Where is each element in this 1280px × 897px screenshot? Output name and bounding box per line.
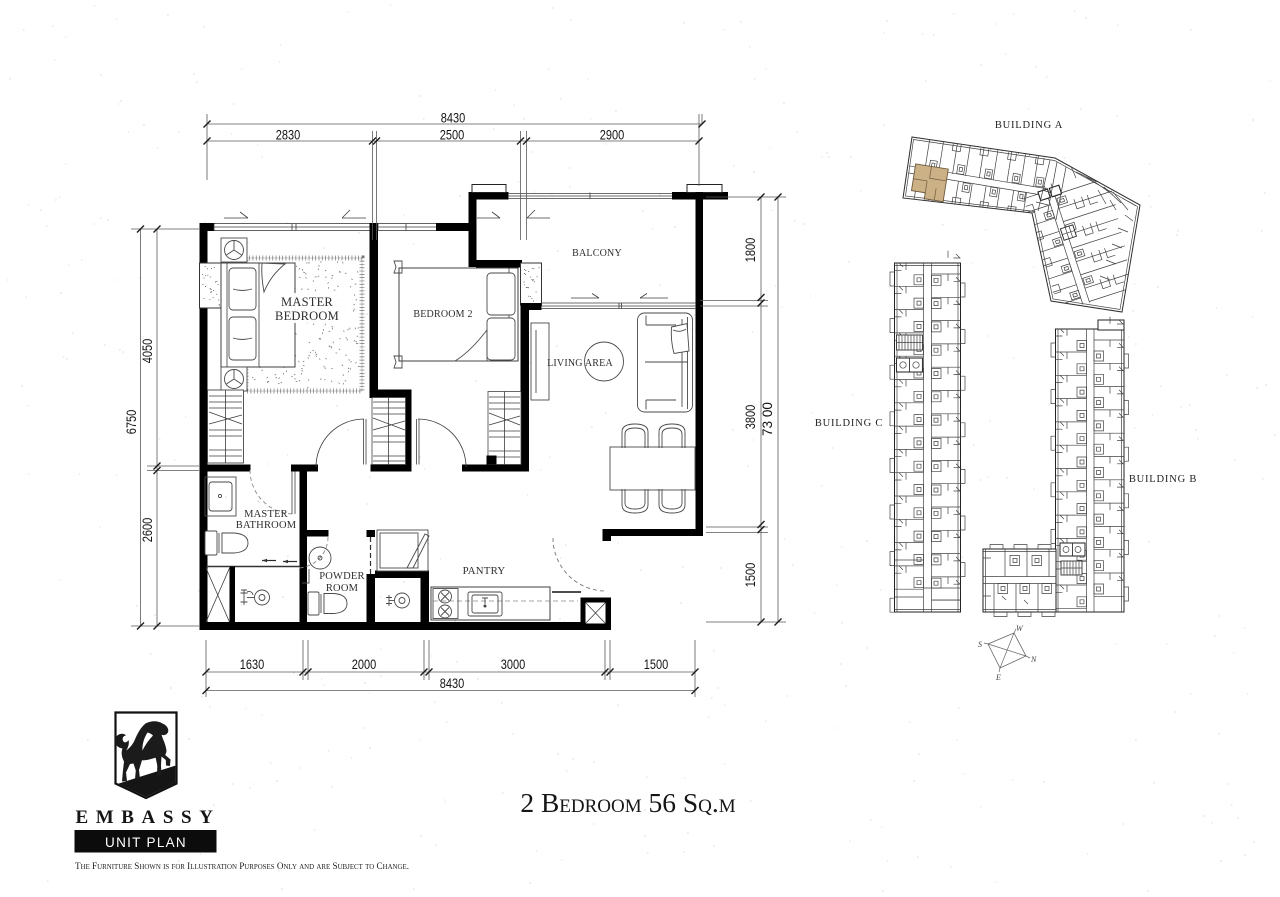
svg-text:UNIT PLAN: UNIT PLAN bbox=[105, 835, 187, 850]
svg-text:PANTRY: PANTRY bbox=[463, 565, 506, 577]
svg-text:MASTER: MASTER bbox=[244, 509, 288, 520]
svg-text:BUILDING B: BUILDING B bbox=[1129, 474, 1197, 485]
svg-text:1800: 1800 bbox=[743, 238, 758, 263]
svg-text:2830: 2830 bbox=[276, 128, 301, 143]
svg-text:N: N bbox=[1030, 655, 1037, 664]
svg-text:2500: 2500 bbox=[440, 128, 465, 143]
svg-text:4050: 4050 bbox=[140, 339, 155, 364]
svg-text:POWDER: POWDER bbox=[319, 571, 365, 582]
svg-text:BALCONY: BALCONY bbox=[572, 248, 622, 259]
svg-text:MASTER: MASTER bbox=[281, 295, 333, 309]
svg-text:73 00: 73 00 bbox=[760, 402, 775, 436]
svg-text:8430: 8430 bbox=[440, 676, 465, 691]
svg-text:3000: 3000 bbox=[501, 657, 526, 672]
svg-text:LIVING AREA: LIVING AREA bbox=[547, 358, 613, 369]
svg-text:1500: 1500 bbox=[644, 657, 669, 672]
svg-text:BEDROOM 2: BEDROOM 2 bbox=[413, 309, 472, 320]
svg-text:BEDROOM: BEDROOM bbox=[275, 309, 339, 323]
svg-text:3800: 3800 bbox=[743, 405, 758, 430]
svg-text:1630: 1630 bbox=[240, 657, 265, 672]
svg-text:S: S bbox=[978, 640, 982, 649]
svg-text:2 Bedroom 56 Sq.m: 2 Bedroom 56 Sq.m bbox=[520, 787, 735, 818]
svg-text:EMBASSY: EMBASSY bbox=[75, 807, 220, 828]
svg-text:8430: 8430 bbox=[441, 111, 466, 126]
svg-text:ROOM: ROOM bbox=[326, 583, 359, 594]
svg-text:BATHROOM: BATHROOM bbox=[236, 520, 297, 531]
svg-text:2900: 2900 bbox=[600, 128, 625, 143]
svg-text:BUILDING A: BUILDING A bbox=[995, 120, 1063, 131]
svg-text:E: E bbox=[995, 673, 1001, 682]
svg-text:2600: 2600 bbox=[140, 518, 155, 543]
svg-text:2000: 2000 bbox=[352, 657, 377, 672]
svg-text:BUILDING C: BUILDING C bbox=[815, 418, 883, 429]
svg-text:1500: 1500 bbox=[743, 563, 758, 588]
svg-text:The Furniture Shown is for Ill: The Furniture Shown is for Illustration … bbox=[75, 862, 409, 872]
svg-text:6750: 6750 bbox=[124, 410, 139, 435]
